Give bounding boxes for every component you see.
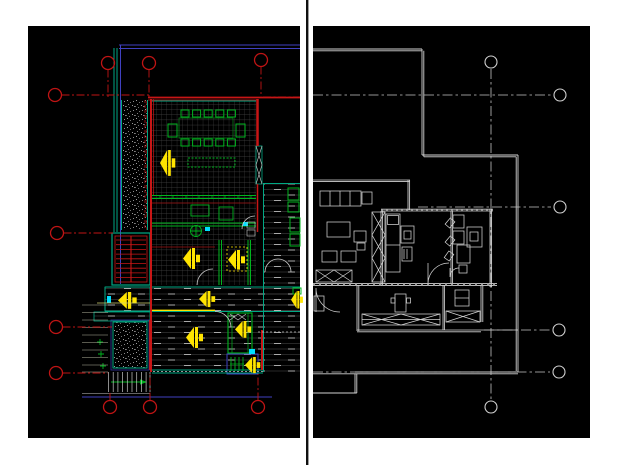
panel-divider-line — [306, 0, 308, 465]
split-floor-plan-view — [0, 0, 620, 465]
floor-plans-drawing — [0, 0, 620, 465]
